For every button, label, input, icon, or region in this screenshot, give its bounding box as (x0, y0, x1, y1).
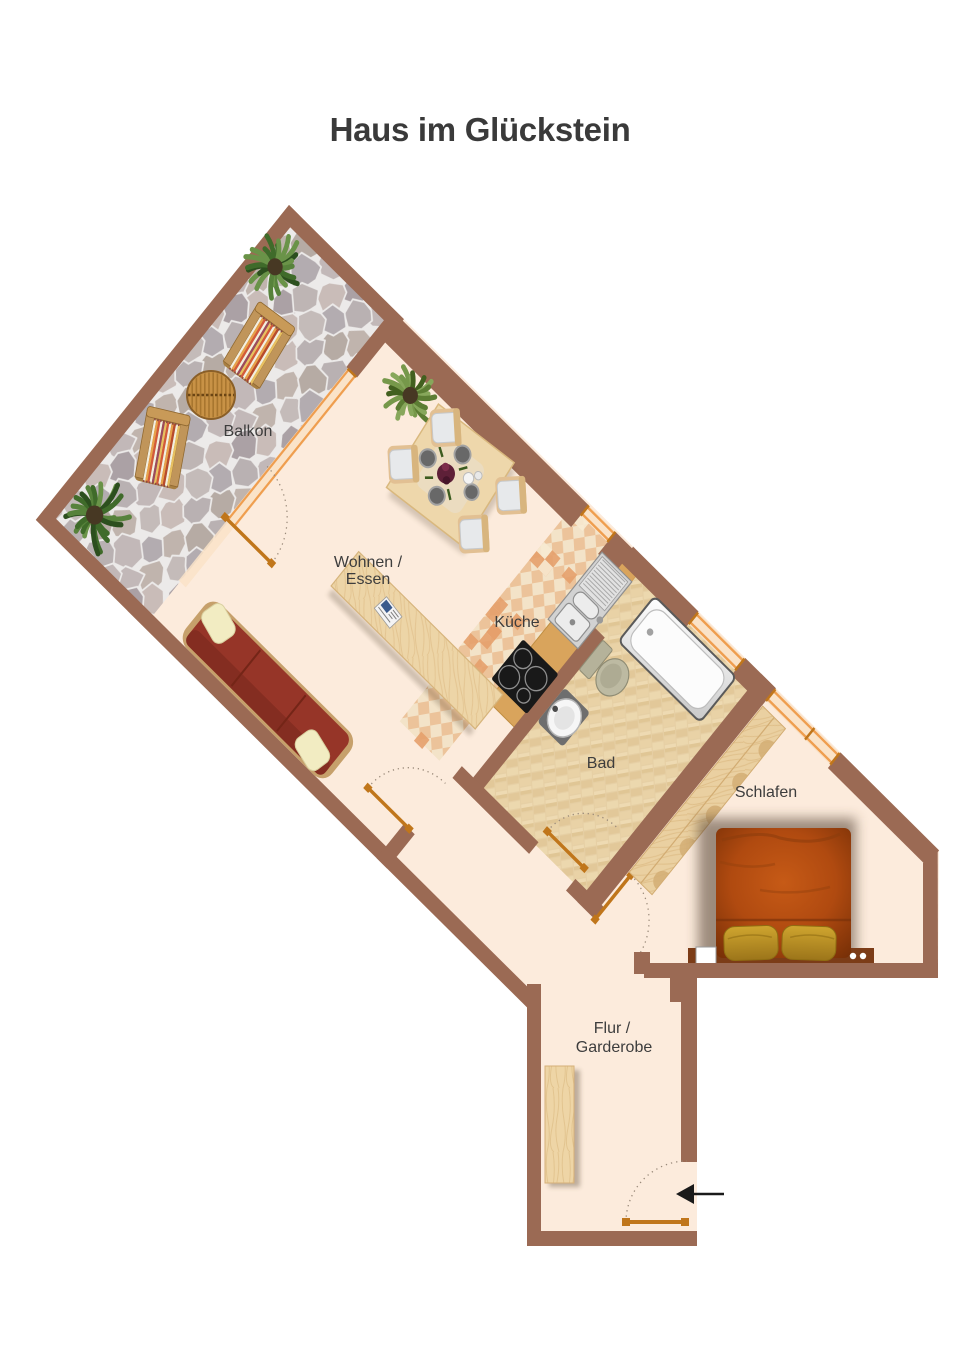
svg-text:Garderobe: Garderobe (576, 1039, 653, 1056)
svg-text:Küche: Küche (494, 614, 539, 631)
svg-text:Flur /: Flur / (594, 1020, 631, 1037)
svg-text:Schlafen: Schlafen (735, 784, 797, 801)
svg-text:Wohnen /: Wohnen / (334, 554, 403, 571)
svg-text:Balkon: Balkon (224, 423, 273, 440)
svg-text:Essen: Essen (346, 571, 390, 588)
svg-text:Bad: Bad (587, 755, 615, 772)
svg-text:Haus im Glückstein: Haus im Glückstein (330, 111, 631, 148)
